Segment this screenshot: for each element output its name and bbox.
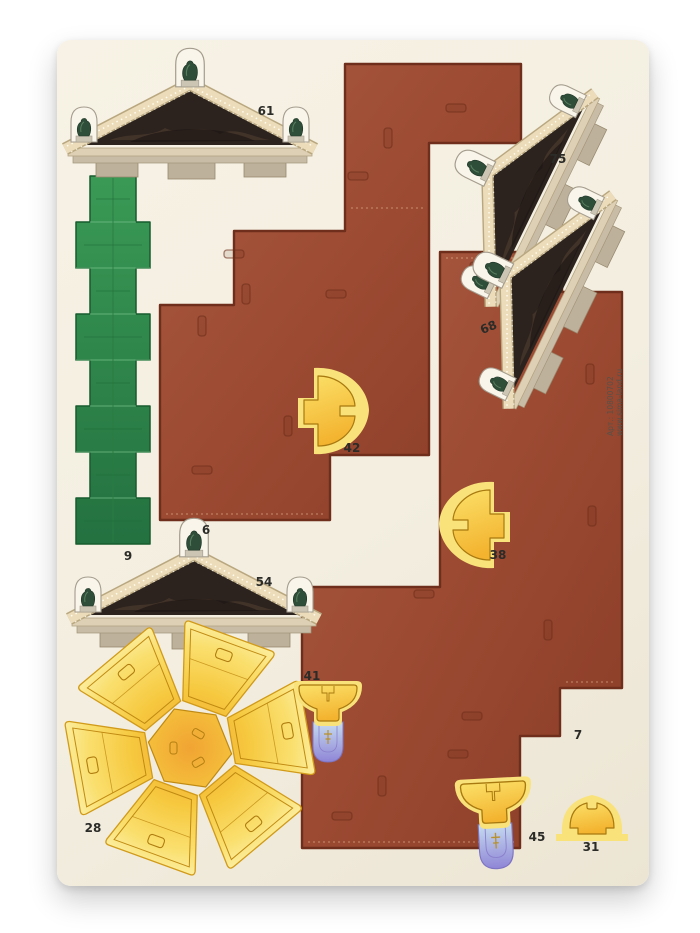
green-strip-piece-9 [76, 176, 150, 544]
article-number: Арт.: 10800702 [606, 376, 615, 436]
small-dome-piece-31 [556, 795, 628, 841]
piece-label-54: 54 [256, 575, 273, 589]
photo-of-papercraft-sheet: 61 75 68 42 38 6 9 54 41 28 7 45 31 Арт.… [0, 0, 700, 933]
piece-label-45: 45 [529, 830, 546, 844]
piece-label-9: 9 [124, 549, 132, 563]
piece-label-7: 7 [574, 728, 582, 742]
piece-label-38: 38 [490, 548, 507, 562]
piece-label-75: 75 [550, 152, 567, 166]
pediment-piece-61 [65, 48, 315, 179]
piece-label-6: 6 [202, 523, 210, 537]
piece-label-42: 42 [344, 441, 361, 455]
piece-label-41: 41 [304, 669, 321, 683]
piece-label-28: 28 [85, 821, 102, 835]
piece-label-61: 61 [258, 104, 275, 118]
dome-rosette-piece-28 [65, 620, 316, 876]
sheet-pieces-graphic: 61 75 68 42 38 6 9 54 41 28 7 45 31 Арт.… [0, 0, 700, 933]
website-url: www.sima-land.ru [615, 369, 624, 436]
article-number-text: Арт.: 10800702 www.sima-land.ru [606, 369, 624, 436]
piece-label-31: 31 [583, 840, 600, 854]
